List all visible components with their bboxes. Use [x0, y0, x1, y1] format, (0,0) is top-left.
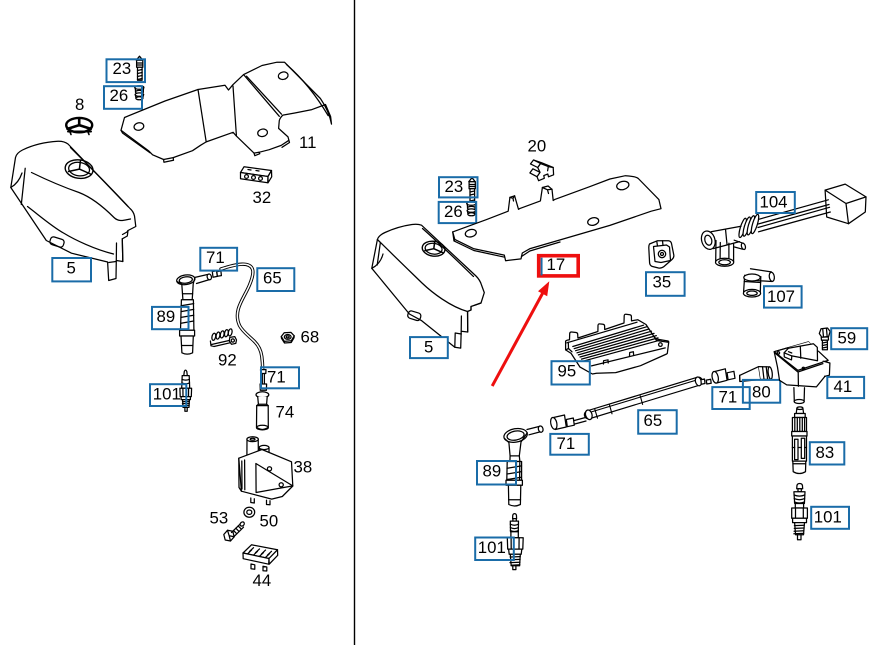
svg-text:53: 53 — [210, 509, 229, 528]
svg-text:38: 38 — [294, 458, 313, 477]
svg-text:50: 50 — [260, 512, 279, 531]
svg-text:71: 71 — [557, 434, 576, 453]
svg-text:68: 68 — [301, 328, 320, 347]
svg-text:5: 5 — [67, 259, 76, 278]
svg-text:104: 104 — [760, 192, 788, 211]
svg-text:101: 101 — [814, 507, 842, 526]
svg-text:92: 92 — [218, 351, 237, 370]
svg-text:8: 8 — [75, 95, 84, 114]
svg-text:44: 44 — [253, 571, 272, 590]
svg-text:71: 71 — [719, 387, 738, 406]
svg-text:41: 41 — [834, 377, 853, 396]
svg-text:20: 20 — [528, 137, 547, 156]
svg-text:32: 32 — [253, 188, 272, 207]
svg-text:74: 74 — [276, 403, 295, 422]
svg-text:35: 35 — [653, 273, 672, 292]
svg-text:107: 107 — [767, 287, 795, 306]
svg-text:89: 89 — [157, 307, 176, 326]
svg-text:23: 23 — [445, 177, 464, 196]
svg-text:5: 5 — [424, 338, 433, 357]
svg-text:65: 65 — [263, 269, 282, 288]
svg-text:23: 23 — [113, 59, 132, 78]
svg-text:11: 11 — [299, 133, 316, 152]
svg-text:71: 71 — [206, 248, 225, 267]
svg-text:95: 95 — [558, 362, 577, 381]
svg-text:65: 65 — [644, 411, 663, 430]
svg-text:101: 101 — [478, 538, 506, 557]
svg-text:59: 59 — [838, 328, 857, 347]
svg-text:17: 17 — [547, 255, 566, 274]
svg-text:80: 80 — [752, 383, 771, 402]
svg-text:101: 101 — [153, 385, 181, 404]
svg-text:83: 83 — [816, 443, 835, 462]
svg-text:26: 26 — [110, 86, 129, 105]
svg-text:26: 26 — [444, 202, 463, 221]
svg-text:89: 89 — [483, 462, 502, 481]
svg-text:71: 71 — [267, 367, 286, 386]
